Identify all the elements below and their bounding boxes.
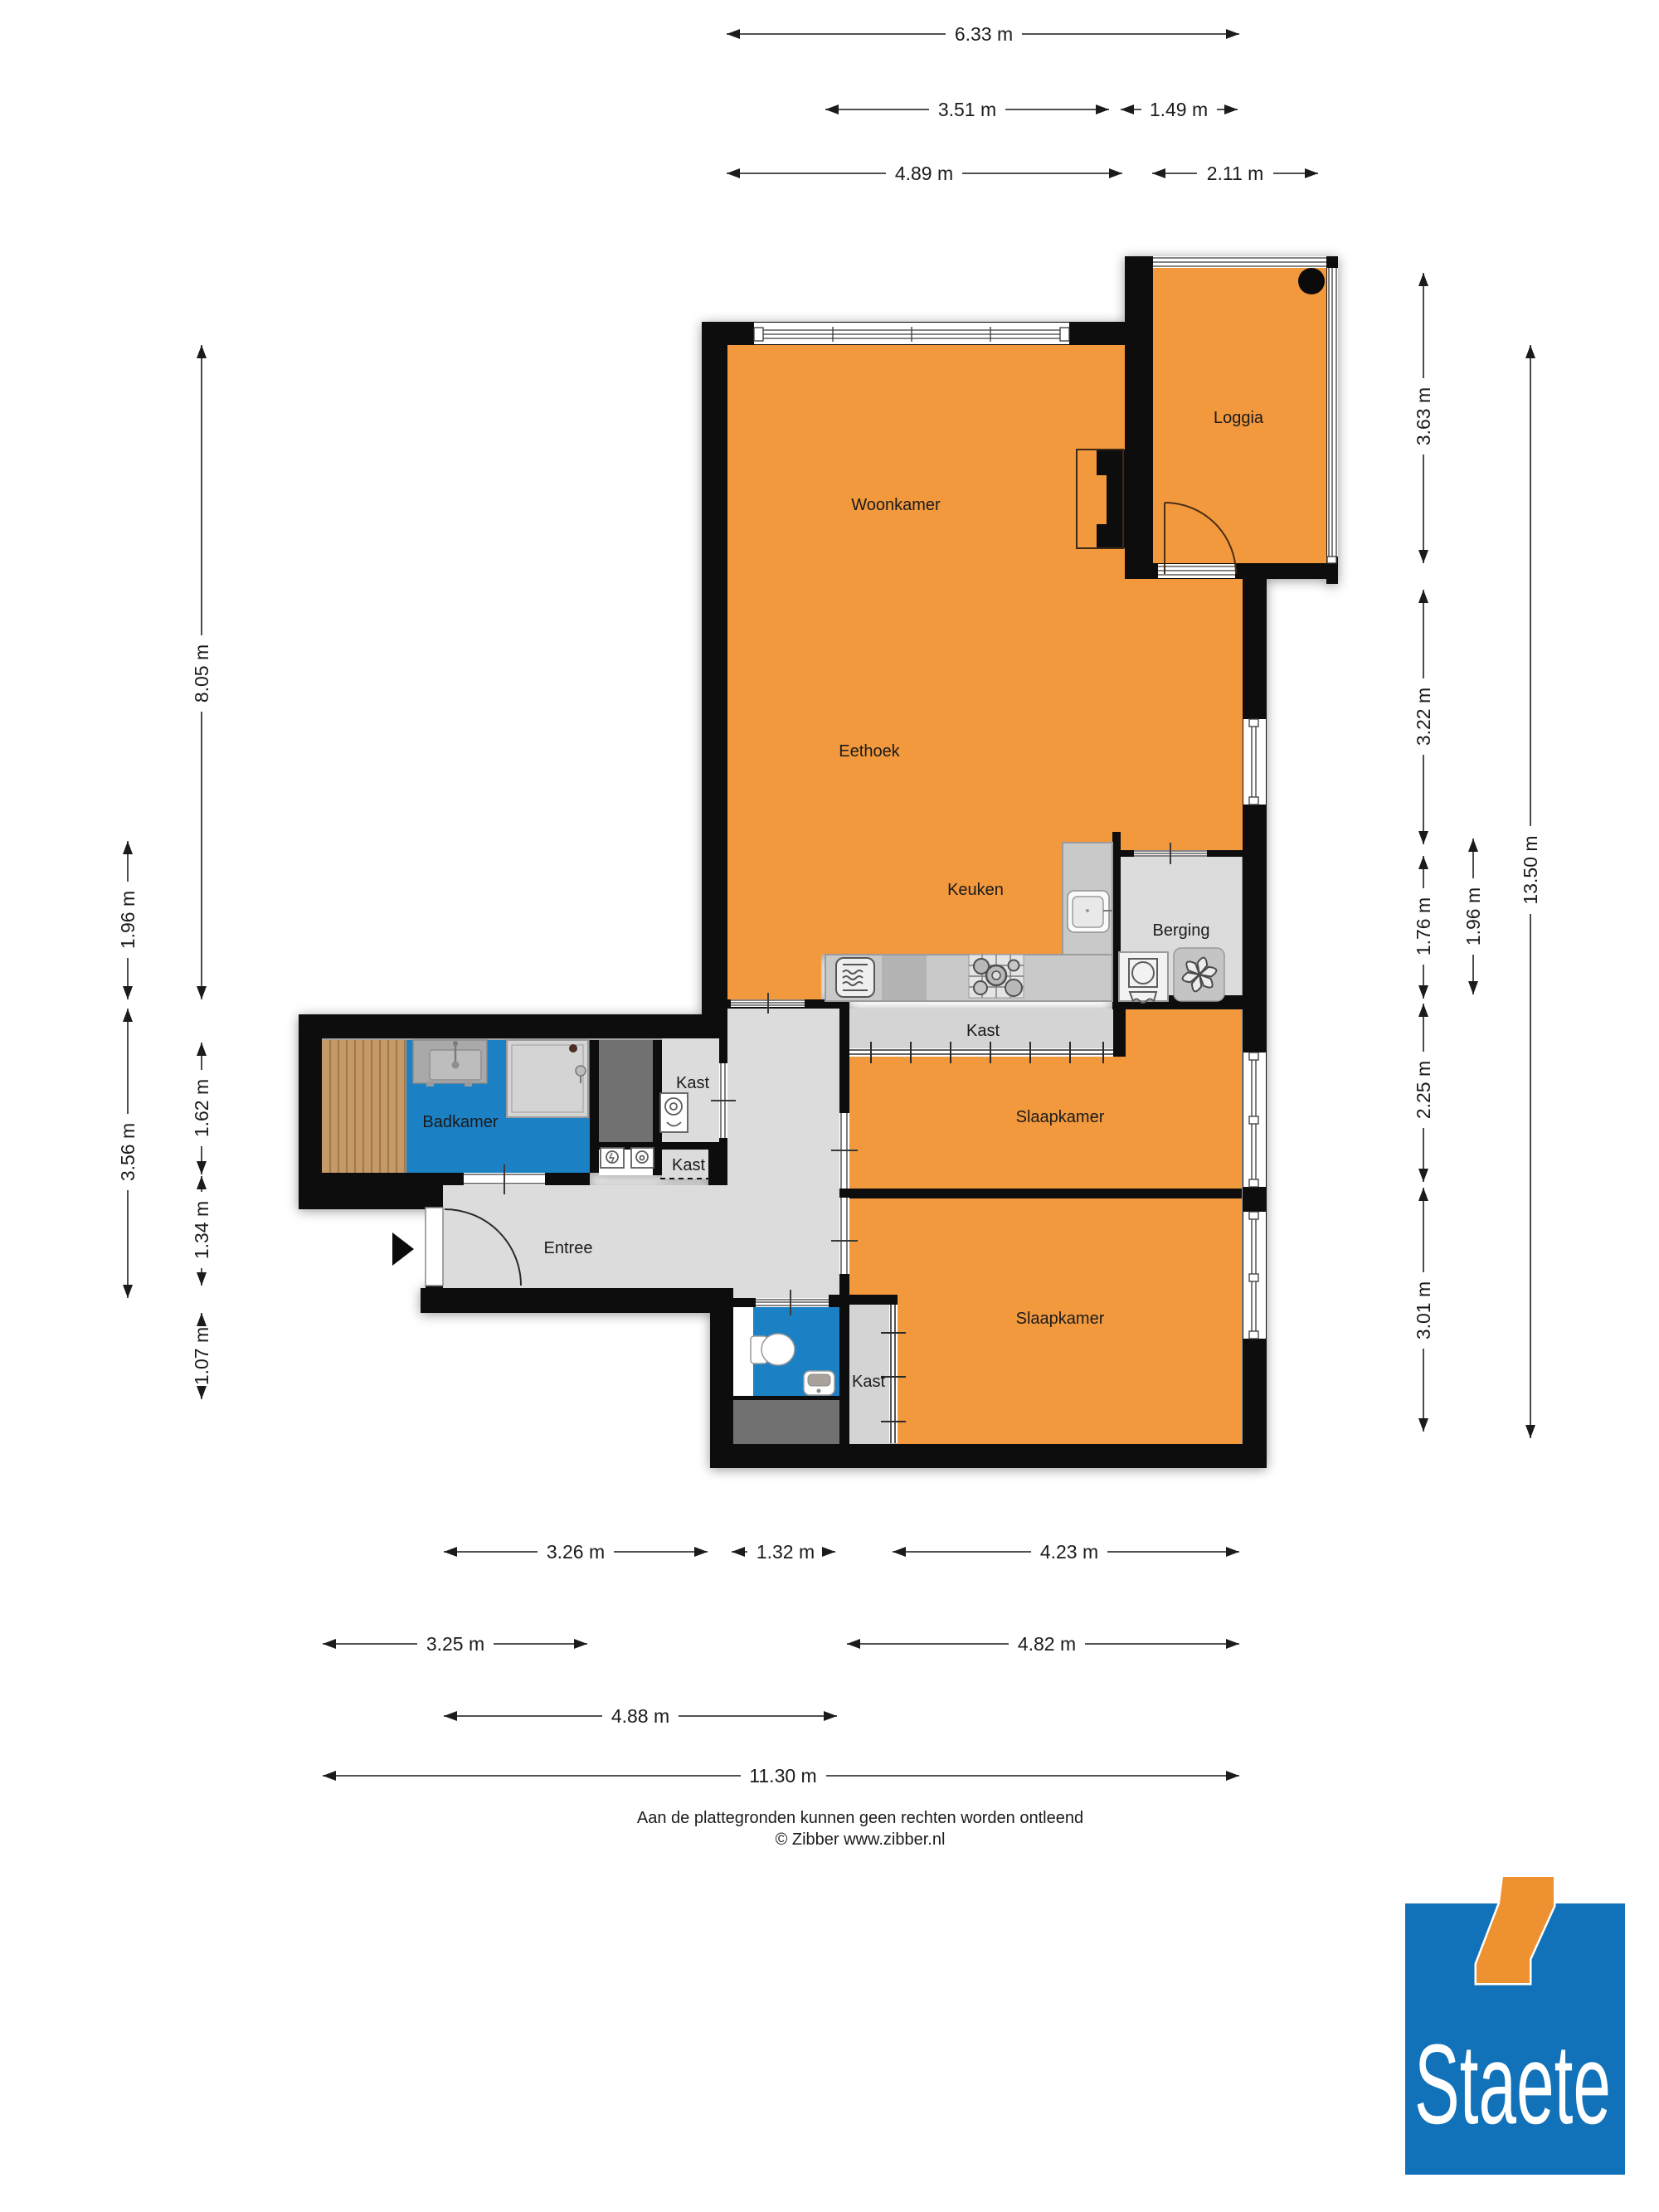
svg-text:1.07 m: 1.07 m bbox=[191, 1327, 212, 1385]
svg-text:4.82 m: 4.82 m bbox=[1018, 1633, 1076, 1655]
svg-text:Entree: Entree bbox=[544, 1239, 593, 1257]
svg-text:Aan de plattegronden kunnen ge: Aan de plattegronden kunnen geen rechten… bbox=[637, 1809, 1083, 1827]
svg-text:4.88 m: 4.88 m bbox=[611, 1705, 669, 1727]
svg-text:1.96 m: 1.96 m bbox=[117, 891, 139, 949]
svg-text:4.23 m: 4.23 m bbox=[1040, 1541, 1098, 1563]
svg-text:Kast: Kast bbox=[672, 1156, 705, 1174]
svg-text:3.56 m: 3.56 m bbox=[117, 1123, 139, 1181]
svg-text:Keuken: Keuken bbox=[947, 881, 1004, 899]
svg-text:1.96 m: 1.96 m bbox=[1462, 887, 1484, 946]
svg-text:4.89 m: 4.89 m bbox=[895, 163, 953, 184]
svg-text:Berging: Berging bbox=[1153, 921, 1210, 940]
svg-text:3.01 m: 3.01 m bbox=[1413, 1281, 1434, 1339]
svg-text:3.26 m: 3.26 m bbox=[547, 1541, 605, 1563]
svg-text:Staete: Staete bbox=[1414, 2021, 1611, 2148]
svg-text:Eethoek: Eethoek bbox=[839, 742, 900, 761]
svg-text:3.51 m: 3.51 m bbox=[938, 99, 996, 120]
svg-text:Loggia: Loggia bbox=[1214, 409, 1264, 427]
svg-text:1.76 m: 1.76 m bbox=[1413, 897, 1434, 955]
svg-text:3.22 m: 3.22 m bbox=[1413, 688, 1434, 746]
svg-text:Kast: Kast bbox=[852, 1373, 885, 1391]
svg-text:Slaapkamer: Slaapkamer bbox=[1016, 1310, 1105, 1328]
svg-text:© Zibber www.zibber.nl: © Zibber www.zibber.nl bbox=[776, 1830, 946, 1849]
svg-text:2.11 m: 2.11 m bbox=[1207, 163, 1264, 184]
svg-text:Woonkamer: Woonkamer bbox=[851, 496, 941, 514]
svg-text:Kast: Kast bbox=[966, 1022, 1000, 1040]
svg-text:6.33 m: 6.33 m bbox=[955, 23, 1013, 45]
svg-text:Kast: Kast bbox=[676, 1074, 709, 1092]
svg-text:1.62 m: 1.62 m bbox=[191, 1079, 212, 1137]
svg-text:3.25 m: 3.25 m bbox=[426, 1633, 484, 1655]
svg-text:1.49 m: 1.49 m bbox=[1150, 99, 1208, 120]
svg-text:1.32 m: 1.32 m bbox=[757, 1541, 815, 1563]
svg-text:2.25 m: 2.25 m bbox=[1413, 1061, 1434, 1119]
svg-text:Slaapkamer: Slaapkamer bbox=[1016, 1108, 1105, 1126]
svg-text:8.05 m: 8.05 m bbox=[191, 644, 212, 702]
svg-text:11.30 m: 11.30 m bbox=[749, 1765, 816, 1787]
svg-text:1.34 m: 1.34 m bbox=[191, 1201, 212, 1259]
svg-text:Badkamer: Badkamer bbox=[422, 1113, 498, 1131]
svg-text:13.50 m: 13.50 m bbox=[1520, 835, 1541, 904]
svg-text:3.63 m: 3.63 m bbox=[1413, 387, 1434, 445]
